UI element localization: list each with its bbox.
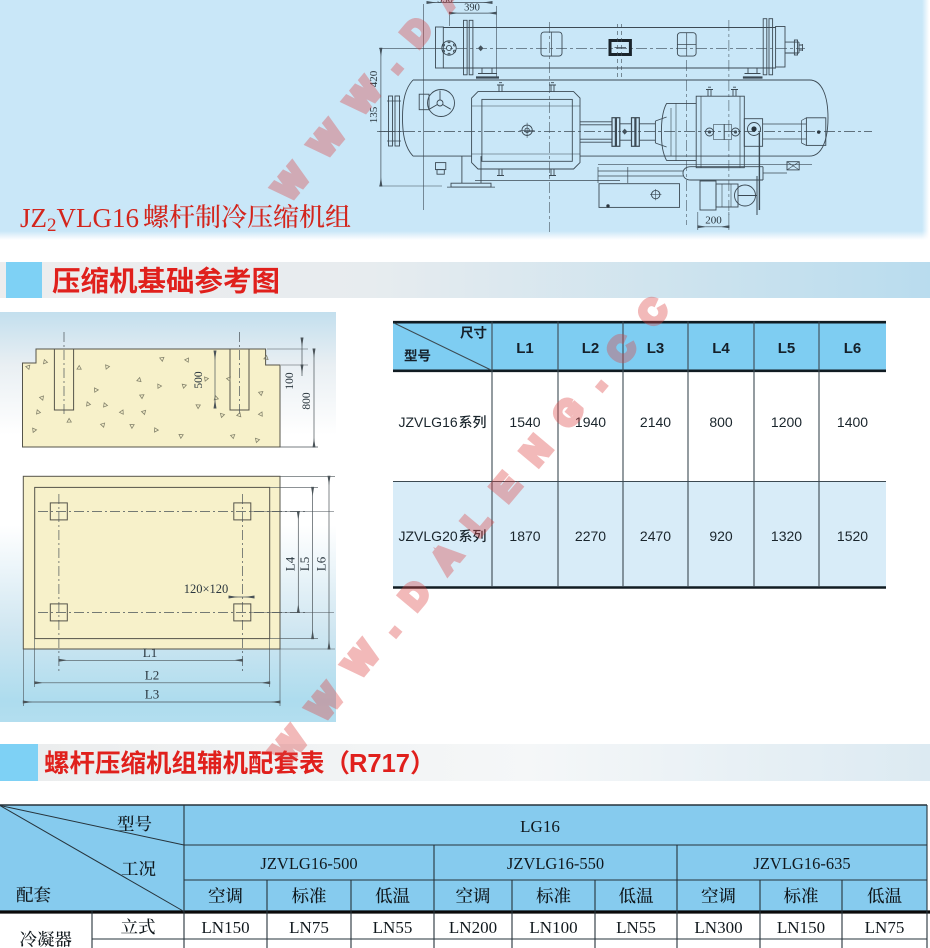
svg-text:JZVLG16-500: JZVLG16-500 xyxy=(260,854,357,873)
svg-text:L6: L6 xyxy=(844,340,862,357)
svg-text:800: 800 xyxy=(301,392,313,410)
svg-text:2270: 2270 xyxy=(575,528,606,544)
svg-text:LN150: LN150 xyxy=(777,918,825,937)
svg-text:JZVLG16-635: JZVLG16-635 xyxy=(753,854,850,873)
svg-text:500: 500 xyxy=(193,371,205,389)
svg-text:LN150: LN150 xyxy=(201,918,249,937)
svg-text:390: 390 xyxy=(464,3,480,14)
svg-text:2470: 2470 xyxy=(640,528,671,544)
svg-text:1200: 1200 xyxy=(771,414,802,430)
svg-text:LG16: LG16 xyxy=(520,817,560,836)
svg-text:1320: 1320 xyxy=(771,528,802,544)
svg-text:2140: 2140 xyxy=(640,414,671,430)
svg-text:LN200: LN200 xyxy=(449,918,497,937)
svg-text:LN55: LN55 xyxy=(373,918,413,937)
svg-text:1870: 1870 xyxy=(509,528,540,544)
svg-text:JZVLG16-550: JZVLG16-550 xyxy=(507,854,604,873)
svg-text:100: 100 xyxy=(284,372,296,390)
svg-text:L4: L4 xyxy=(283,556,298,571)
svg-text:1400: 1400 xyxy=(837,414,868,430)
svg-text:L1: L1 xyxy=(143,645,157,660)
svg-text:LN55: LN55 xyxy=(616,918,656,937)
svg-text:120×120: 120×120 xyxy=(184,582,229,596)
svg-text:L6: L6 xyxy=(314,556,329,571)
svg-text:800: 800 xyxy=(709,414,733,430)
svg-text:L1: L1 xyxy=(516,340,534,357)
svg-text:LN75: LN75 xyxy=(865,918,905,937)
svg-text:L3: L3 xyxy=(145,687,159,702)
svg-text:L4: L4 xyxy=(712,340,730,357)
svg-text:JZ2VLG16: JZ2VLG16 xyxy=(20,203,139,236)
svg-text:JZVLG16: JZVLG16 xyxy=(399,414,458,430)
svg-text:920: 920 xyxy=(709,528,733,544)
svg-text:200: 200 xyxy=(705,215,722,227)
svg-text:LN300: LN300 xyxy=(694,918,742,937)
svg-text:LN100: LN100 xyxy=(529,918,577,937)
svg-text:1520: 1520 xyxy=(837,528,868,544)
svg-text:L5: L5 xyxy=(778,340,796,357)
svg-text:R717: R717 xyxy=(349,750,410,778)
svg-text:LN75: LN75 xyxy=(289,918,329,937)
svg-text:L5: L5 xyxy=(297,557,312,571)
svg-text:L2: L2 xyxy=(145,668,159,683)
